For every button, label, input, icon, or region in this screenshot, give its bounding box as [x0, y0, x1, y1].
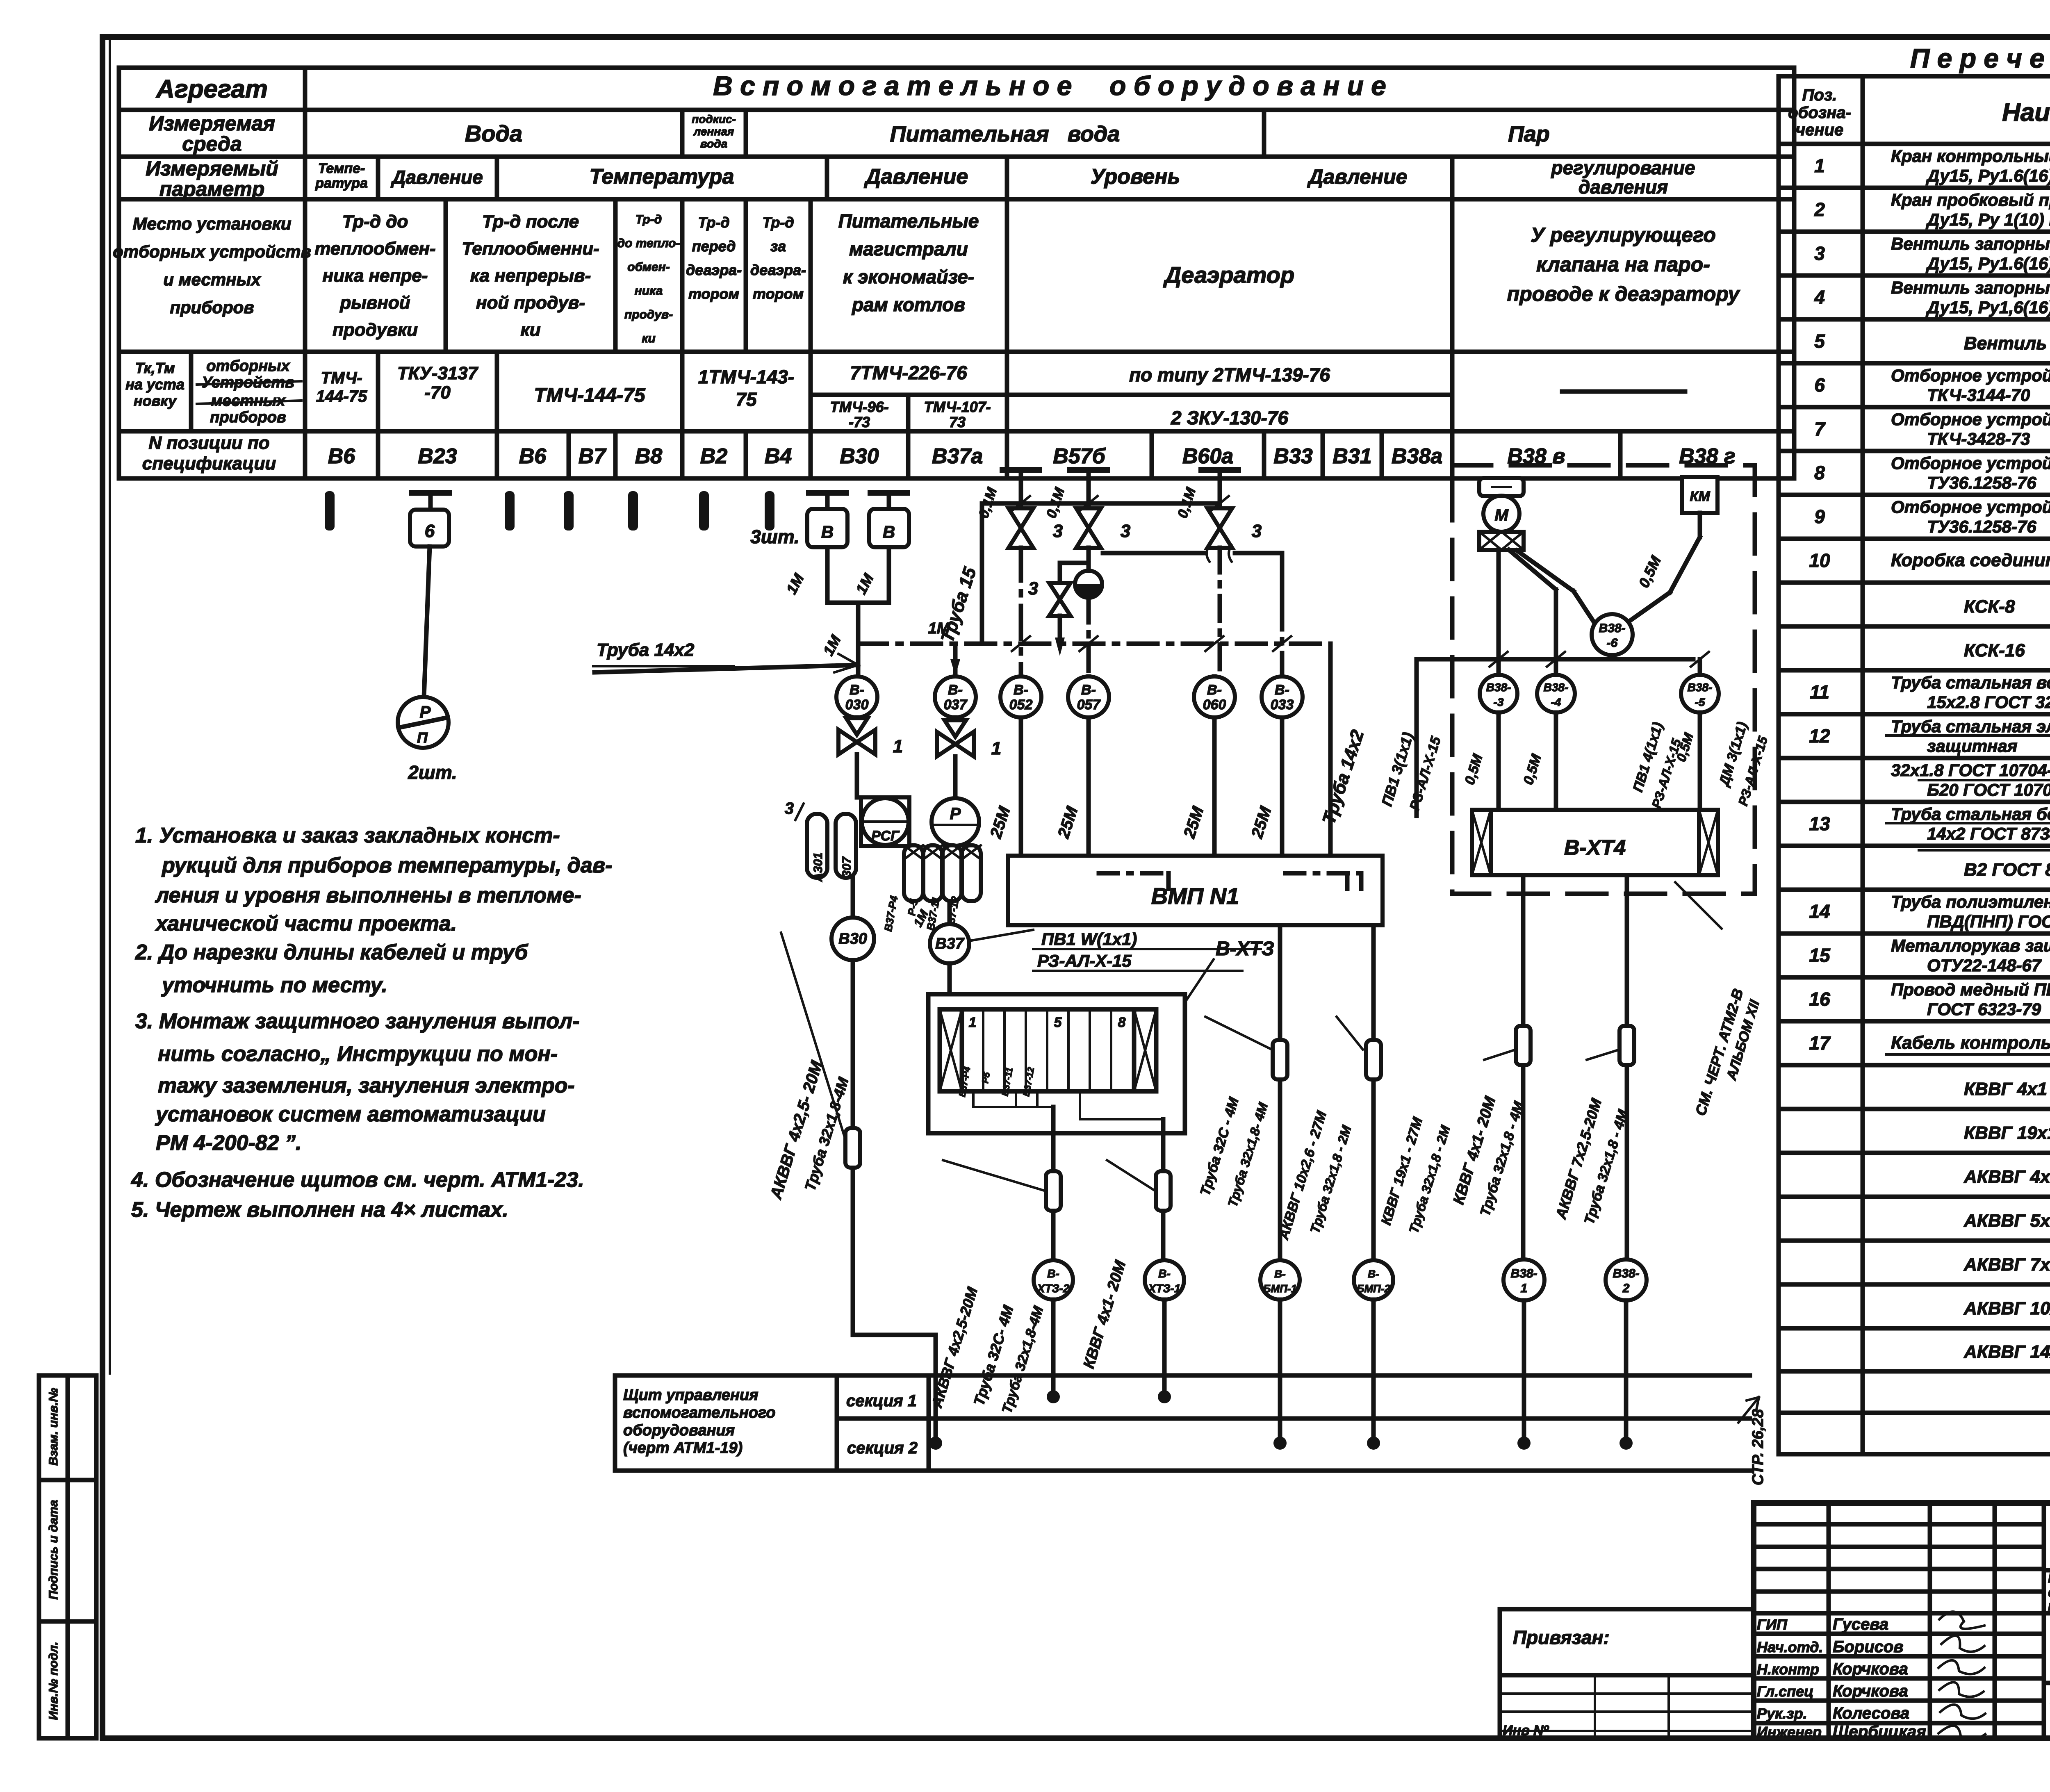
svg-text:Привязан:: Привязан:: [1513, 1627, 1610, 1648]
svg-text:давления: давления: [1578, 176, 1668, 198]
svg-text:Деаэратор: Деаэратор: [1163, 262, 1294, 288]
svg-text:вспомогательного: вспомогательного: [623, 1404, 776, 1421]
svg-text:тором: тором: [753, 285, 804, 302]
svg-text:Наименование: Наименование: [2002, 98, 2050, 127]
svg-text:060: 060: [1203, 697, 1226, 713]
svg-text:4. Обозначение щитов см.: 4. Обозначение щитов см. черт. АТМ1-23.: [131, 1168, 584, 1192]
svg-text:КМ: КМ: [1690, 489, 1710, 504]
svg-text:АКВВГ 4х2.5: АКВВГ 4х2.5: [1963, 1167, 2050, 1187]
svg-text:2: 2: [1814, 199, 1825, 220]
svg-text:В-ХТЗ: В-ХТЗ: [1216, 938, 1274, 960]
svg-text:В с п о м о г а т е л ь н о е: В с п о м о г а т е л ь н о е о б о р у …: [713, 71, 1386, 101]
svg-text:В38-: В38-: [1613, 1267, 1639, 1280]
svg-text:057: 057: [1077, 697, 1101, 713]
svg-text:чение: чение: [1796, 121, 1843, 139]
svg-text:В4: В4: [765, 444, 792, 468]
svg-text:тажу заземления, зануления э: тажу заземления, зануления электро-: [158, 1074, 575, 1098]
svg-text:ТМЧ-: ТМЧ-: [321, 369, 362, 387]
svg-text:Ду15, Ру1.6(16) ТУ26-07-1061: Ду15, Ру1.6(16) ТУ26-07-1061-73: [1926, 166, 2050, 185]
svg-text:регулирование: регулирование: [1551, 157, 1695, 178]
svg-text:1ТМЧ-143-: 1ТМЧ-143-: [698, 366, 794, 387]
svg-text:17: 17: [1809, 1032, 1831, 1054]
svg-text:12: 12: [1809, 725, 1830, 747]
svg-text:Кран контрольный трехходовой 1: Кран контрольный трехходовой 14м1: [1891, 146, 2050, 166]
svg-text:6: 6: [425, 521, 435, 541]
svg-text:У регулирующего: У регулирующего: [1531, 223, 1716, 246]
svg-text:сельского строительства ( в б: сельского строительства ( в блочном испо…: [2048, 1585, 2050, 1600]
svg-text:Темпе-: Темпе-: [318, 161, 365, 176]
svg-text:нении). Топливо-каменные и бур: нении). Топливо-каменные и бурые угли.: [2048, 1598, 2050, 1613]
svg-text:Гусева: Гусева: [1833, 1615, 1888, 1633]
svg-text:2: 2: [1622, 1282, 1630, 1295]
svg-text:-3: -3: [1494, 696, 1504, 708]
svg-text:Подпись и дата: Подпись и дата: [47, 1500, 60, 1599]
svg-text:Питательная вода: Питательная вода: [890, 122, 1120, 146]
svg-text:ПВД(ПНП) ГОСТ 18599-83: ПВД(ПНП) ГОСТ 18599-83: [1927, 912, 2050, 931]
svg-text:ВМП N1: ВМП N1: [1151, 883, 1239, 909]
svg-text:Вода: Вода: [465, 121, 522, 146]
svg-text:В30: В30: [838, 930, 867, 947]
svg-text:приборов: приборов: [210, 409, 286, 426]
svg-text:Кран пробковый проходной 14ч6б: Кран пробковый проходной 14ч6бк: [1891, 190, 2050, 209]
svg-text:КВВГ 19х1: КВВГ 19х1: [1964, 1123, 2050, 1143]
svg-text:3: 3: [1121, 521, 1130, 541]
svg-text:Труба стальная водогазопроводн: Труба стальная водогазопроводная: [1891, 673, 2050, 692]
svg-text:Отборное устройство 16-225У: Отборное устройство 16-225У: [1891, 497, 2050, 517]
svg-text:АКВВГ 5х2.5: АКВВГ 5х2.5: [1963, 1211, 2050, 1231]
svg-text:АКВВГ 7х2.5: АКВВГ 7х2.5: [1963, 1255, 2050, 1275]
svg-text:Давление: Давление: [1307, 165, 1408, 188]
svg-text:деаэра-: деаэра-: [686, 262, 742, 278]
svg-text:73: 73: [949, 414, 966, 430]
svg-text:КСК-16: КСК-16: [1964, 640, 2025, 660]
svg-text:Измеряемый: Измеряемый: [146, 157, 278, 180]
svg-text:обозна-: обозна-: [1788, 104, 1851, 122]
svg-text:В38а: В38а: [1392, 444, 1442, 468]
svg-text:ГОСТ 6323-79: ГОСТ 6323-79: [1927, 1000, 2041, 1019]
svg-text:ленная: ленная: [693, 125, 734, 138]
svg-text:16: 16: [1809, 988, 1830, 1010]
svg-text:3: 3: [1028, 578, 1038, 599]
svg-text:1: 1: [893, 736, 903, 756]
svg-text:ТМЧ-107-: ТМЧ-107-: [924, 398, 991, 415]
svg-text:В2: В2: [700, 444, 728, 468]
svg-text:до тепло-: до тепло-: [617, 237, 680, 250]
svg-text:ТУ36.1258-76: ТУ36.1258-76: [1927, 517, 2036, 536]
svg-text:13: 13: [1809, 813, 1830, 834]
svg-text:В31: В31: [1332, 444, 1371, 468]
svg-text:Вентиль запорный муфтовый 15ч8: Вентиль запорный муфтовый 15ч8п2: [1891, 234, 2050, 253]
svg-text:перед: перед: [692, 238, 736, 255]
svg-text:по типу 2ТМЧ-139-76: по типу 2ТМЧ-139-76: [1129, 364, 1330, 385]
svg-text:АКВВГ 14х2.5: АКВВГ 14х2.5: [1963, 1342, 2050, 1362]
svg-text:Пар: Пар: [1508, 122, 1550, 146]
svg-text:М: М: [1494, 506, 1509, 524]
svg-text:РМ 4-200-82 ”.: РМ 4-200-82 ”.: [156, 1131, 302, 1155]
svg-text:подкис-: подкис-: [692, 113, 736, 125]
svg-text:ХТЗ-1: ХТЗ-1: [1148, 1282, 1181, 1295]
svg-text:В38-: В38-: [1544, 681, 1569, 694]
svg-text:14х2 ГОСТ 8734-75: 14х2 ГОСТ 8734-75: [1927, 824, 2050, 843]
svg-text:Уровень: Уровень: [1091, 165, 1180, 189]
svg-text:В6: В6: [328, 444, 356, 468]
svg-text:Ду15, Ру1,6(16) ГОСТ 18161-7: Ду15, Ру1,6(16) ГОСТ 18161-72: [1926, 298, 2050, 317]
svg-text:Б20 ГОСТ 10705-80: Б20 ГОСТ 10705-80: [1927, 780, 2050, 799]
svg-text:В33: В33: [1273, 444, 1312, 468]
svg-text:10: 10: [1809, 550, 1830, 571]
svg-text:11: 11: [1810, 681, 1829, 703]
svg-text:3: 3: [1053, 521, 1063, 541]
svg-text:1: 1: [1814, 155, 1825, 176]
svg-text:В-: В-: [1274, 1268, 1285, 1280]
svg-text:1. Установка и заказ заклад: 1. Установка и заказ закладных конст-: [135, 824, 560, 847]
svg-text:ХТЗ-2: ХТЗ-2: [1036, 1282, 1070, 1295]
svg-text:Отборное устройство 16-80: Отборное устройство 16-80: [1891, 366, 2050, 385]
svg-text:ления и уровня выполнены в: ления и уровня выполнены в тепломе-: [155, 883, 581, 907]
svg-text:В: В: [821, 522, 834, 542]
svg-text:ки: ки: [520, 320, 540, 340]
svg-text:Тк,Тм: Тк,Тм: [135, 360, 175, 376]
svg-text:Труба стальная бесшовная: Труба стальная бесшовная: [1891, 804, 2050, 824]
svg-text:Инв Nº: Инв Nº: [1503, 1723, 1549, 1738]
svg-text:32х1.8 ГОСТ 10704-76: 32х1.8 ГОСТ 10704-76: [1891, 761, 2050, 780]
svg-text:ПВ1 W(1х1): ПВ1 W(1х1): [1041, 929, 1137, 949]
svg-text:В-: В-: [1158, 1267, 1171, 1280]
svg-text:А301: А301: [811, 852, 825, 882]
svg-text:Р5: Р5: [980, 1071, 992, 1084]
svg-text:ТКЧ-3144-70: ТКЧ-3144-70: [1927, 385, 2030, 405]
svg-text:Измеряемая: Измеряемая: [149, 112, 275, 135]
svg-text:-5: -5: [1695, 696, 1705, 708]
svg-text:Нач.отд.: Нач.отд.: [1757, 1639, 1823, 1655]
svg-text:к экономайзе-: к экономайзе-: [843, 266, 974, 287]
svg-text:3: 3: [1252, 521, 1262, 541]
svg-text:3шт.: 3шт.: [750, 526, 799, 547]
svg-text:параметр: параметр: [159, 178, 265, 200]
svg-text:В-: В-: [1047, 1267, 1059, 1280]
svg-text:Вентиль запорный: Вентиль запорный: [1964, 333, 2050, 353]
svg-text:Корчкова: Корчкова: [1833, 1660, 1908, 1678]
svg-text:Тр-д до: Тр-д до: [342, 212, 408, 232]
svg-text:Вентиль запорный 15кч18п: Вентиль запорный 15кч18п: [1891, 278, 2050, 297]
svg-text:за: за: [770, 238, 786, 255]
svg-text:3. Монтаж защитного зануле: 3. Монтаж защитного зануления выпол-: [135, 1009, 580, 1033]
svg-text:В38-: В38-: [1688, 681, 1713, 694]
svg-text:В38-: В38-: [1599, 622, 1625, 635]
svg-text:В60а: В60а: [1182, 444, 1233, 468]
svg-text:Ду15, Ру1.6(16) ГОСТ 18722-7: Ду15, Ру1.6(16) ГОСТ 18722-73: [1926, 254, 2050, 273]
svg-text:СТР. 26,28: СТР. 26,28: [1749, 1409, 1767, 1485]
svg-text:Питательные: Питательные: [838, 210, 979, 232]
svg-text:-70: -70: [424, 383, 451, 403]
svg-text:75: 75: [736, 389, 757, 410]
svg-text:В-: В-: [1275, 682, 1289, 698]
svg-text:уточнить по месту.: уточнить по месту.: [161, 973, 387, 997]
svg-text:В-: В-: [1207, 682, 1222, 698]
svg-text:теплообмен-: теплообмен-: [314, 239, 435, 259]
svg-text:7ТМЧ-226-76: 7ТМЧ-226-76: [850, 362, 967, 383]
svg-text:установок систем автоматиз: установок систем автоматизации: [155, 1102, 546, 1126]
svg-text:3: 3: [785, 799, 794, 817]
svg-text:рам котлов: рам котлов: [851, 294, 965, 315]
svg-text:Рук.зр.: Рук.зр.: [1757, 1705, 1807, 1722]
svg-text:деаэра-: деаэра-: [750, 262, 806, 278]
svg-text:ТКЧ-3428-73: ТКЧ-3428-73: [1927, 429, 2030, 449]
svg-text:ТУ36.1258-76: ТУ36.1258-76: [1927, 473, 2036, 492]
svg-text:4: 4: [1814, 287, 1825, 308]
svg-text:Отборное устройство 64-200П: Отборное устройство 64-200П: [1891, 453, 2050, 473]
svg-text:030: 030: [845, 697, 869, 713]
svg-text:Р: Р: [420, 703, 431, 721]
svg-text:ратура: ратура: [315, 175, 368, 191]
svg-text:БМП-1: БМП-1: [1263, 1282, 1297, 1295]
svg-text:-6: -6: [1607, 636, 1618, 650]
svg-text:052: 052: [1009, 697, 1033, 713]
svg-text:и местных: и местных: [163, 270, 261, 289]
svg-text:КСК-8: КСК-8: [1964, 597, 2015, 617]
svg-text:Металлорукав защитный РЗ-АЛ-Х-: Металлорукав защитный РЗ-АЛ-Х-15: [1891, 936, 2050, 955]
svg-text:N позиции по: N позиции по: [148, 433, 269, 453]
svg-text:В-: В-: [850, 682, 864, 698]
svg-text:Борисов: Борисов: [1833, 1638, 1903, 1656]
svg-text:В-: В-: [948, 682, 963, 698]
svg-text:1: 1: [991, 738, 1001, 758]
svg-text:Труба полиэтиленовая 32С: Труба полиэтиленовая 32С: [1891, 892, 2050, 911]
svg-text:Теплообменни-: Теплообменни-: [462, 239, 599, 259]
svg-text:ника: ника: [635, 284, 663, 298]
svg-text:ТМЧ-144-75: ТМЧ-144-75: [534, 385, 645, 406]
svg-text:2 ЗКУ-130-76: 2 ЗКУ-130-76: [1171, 407, 1288, 428]
svg-text:В57б: В57б: [1053, 444, 1106, 468]
svg-text:продув-: продув-: [624, 308, 673, 321]
svg-text:РЗ-АЛ-Х-15: РЗ-АЛ-Х-15: [1037, 951, 1132, 970]
svg-text:В-: В-: [1081, 682, 1096, 698]
svg-text:КВВГ 4х1: КВВГ 4х1: [1964, 1079, 2047, 1099]
svg-text:вода: вода: [700, 137, 727, 150]
svg-text:РСГ: РСГ: [871, 828, 900, 844]
svg-text:В37а: В37а: [932, 444, 983, 468]
svg-text:15х2.8 ГОСТ 3262-75: 15х2.8 ГОСТ 3262-75: [1927, 692, 2050, 712]
svg-text:рукций для приборов темпера: рукций для приборов температуры, дав-: [161, 854, 612, 877]
svg-text:-4: -4: [1551, 696, 1561, 708]
svg-text:Давление: Давление: [864, 165, 968, 189]
svg-text:нить согласно„ Инструкции по: нить согласно„ Инструкции по мон-: [158, 1042, 558, 1066]
svg-text:В-: В-: [1014, 682, 1028, 698]
svg-text:5: 5: [1054, 1015, 1062, 1030]
svg-text:магистрали: магистрали: [849, 238, 968, 260]
svg-text:Тр-д: Тр-д: [698, 214, 729, 231]
svg-text:защитная: защитная: [1927, 736, 2018, 756]
svg-text:Взам. инв.№: Взам. инв.№: [47, 1388, 60, 1466]
svg-text:Гл.спец: Гл.спец: [1757, 1683, 1813, 1700]
svg-text:В6: В6: [519, 444, 547, 468]
svg-text:В38-: В38-: [1510, 1267, 1537, 1280]
svg-text:033: 033: [1271, 697, 1294, 713]
svg-text:ОТУ22-148-67: ОТУ22-148-67: [1927, 956, 2042, 975]
svg-text:9: 9: [1814, 506, 1825, 527]
svg-text:1: 1: [1521, 1282, 1528, 1295]
svg-text:ника непре-: ника непре-: [323, 266, 428, 286]
svg-text:отборных: отборных: [206, 357, 290, 375]
svg-text:ной продув-: ной продув-: [476, 293, 585, 313]
svg-text:П е р е ч е н ь э л е м е н: П е р е ч е н ь э л е м е н т о в: [1910, 43, 2050, 73]
svg-text:Р: Р: [950, 805, 961, 823]
svg-text:секция 2: секция 2: [847, 1439, 918, 1457]
svg-text:Тр-д: Тр-д: [762, 214, 794, 231]
svg-text:Агрегат: Агрегат: [155, 75, 268, 103]
svg-text:Место установки: Место установки: [132, 214, 291, 233]
svg-text:продувки: продувки: [333, 320, 418, 340]
svg-text:ханической части проекта.: ханической части проекта.: [155, 912, 457, 936]
svg-text:ТКУ-3137: ТКУ-3137: [397, 363, 479, 383]
svg-text:ки: ки: [642, 332, 656, 345]
svg-text:обмен-: обмен-: [627, 260, 670, 274]
svg-text:Колесова: Колесова: [1833, 1704, 1909, 1722]
svg-text:среда: среда: [182, 132, 241, 155]
svg-text:Коробка соединительная: Коробка соединительная: [1891, 550, 2050, 570]
svg-text:приборов: приборов: [170, 298, 254, 317]
svg-text:14: 14: [1809, 901, 1830, 922]
svg-text:8: 8: [1118, 1015, 1126, 1030]
svg-text:Провод медный ПВ1. 1. 380: Провод медный ПВ1. 1. 380: [1891, 980, 2050, 999]
svg-text:В8: В8: [635, 444, 663, 468]
svg-text:проводе к деаэратору: проводе к деаэратору: [1507, 282, 1740, 305]
svg-text:8: 8: [1814, 462, 1825, 483]
svg-text:Корчкова: Корчкова: [1833, 1682, 1908, 1700]
svg-text:В-ХТ4: В-ХТ4: [1564, 836, 1626, 860]
svg-text:Тр-д: Тр-д: [635, 213, 662, 226]
svg-text:В2 ГОСТ 8733-74: В2 ГОСТ 8733-74: [1964, 860, 2050, 880]
svg-text:144-75: 144-75: [316, 387, 367, 405]
svg-text:на уста: на уста: [125, 376, 184, 393]
svg-text:Труба стальная электросварная: Труба стальная электросварная: [1891, 717, 2050, 736]
svg-text:новку: новку: [134, 392, 177, 409]
svg-text:В-: В-: [1368, 1268, 1379, 1280]
svg-text:В7: В7: [579, 444, 607, 468]
svg-text:клапана на паро-: клапана на паро-: [1536, 253, 1710, 276]
svg-text:Температура: Температура: [589, 165, 734, 189]
svg-text:В30: В30: [840, 444, 879, 468]
svg-text:спецификации: спецификации: [142, 453, 276, 474]
svg-text:Тр-д после: Тр-д после: [482, 212, 579, 232]
svg-text:В38-: В38-: [1486, 681, 1511, 694]
svg-text:Кабель контрольный ГОСТ 1508-7: Кабель контрольный ГОСТ 1508-78: [1891, 1033, 2050, 1053]
svg-text:5: 5: [1814, 330, 1825, 352]
svg-text:-73: -73: [849, 414, 870, 430]
svg-text:В: В: [883, 522, 895, 542]
svg-text:Щербицкая: Щербицкая: [1833, 1723, 1926, 1741]
svg-text:Инженер: Инженер: [1757, 1724, 1822, 1740]
svg-text:ТМЧ-96-: ТМЧ-96-: [830, 398, 888, 415]
svg-text:307: 307: [840, 856, 854, 877]
svg-text:7: 7: [1814, 418, 1826, 439]
svg-text:(черт АТМ1-19): (черт АТМ1-19): [623, 1439, 743, 1457]
svg-text:секция 1: секция 1: [846, 1392, 917, 1410]
svg-text:6: 6: [1814, 374, 1825, 396]
svg-text:Н.контр: Н.контр: [1757, 1661, 1819, 1678]
svg-text:2шт.: 2шт.: [408, 762, 457, 783]
svg-text:Поз.: Поз.: [1802, 86, 1837, 104]
svg-text:тором: тором: [688, 285, 739, 302]
svg-text:Отборное устройство 16-200: Отборное устройство 16-200: [1891, 410, 2050, 429]
svg-text:В23: В23: [418, 444, 457, 468]
svg-text:Инв.№ подл.: Инв.№ подл.: [47, 1642, 60, 1720]
svg-text:рывной: рывной: [339, 293, 410, 313]
svg-text:3: 3: [1814, 243, 1825, 264]
svg-text:АКВВГ 10х2.5: АКВВГ 10х2.5: [1963, 1298, 2050, 1318]
svg-text:Труба 14х2: Труба 14х2: [597, 640, 695, 660]
svg-text:Щит управления: Щит управления: [623, 1387, 758, 1404]
svg-text:037: 037: [944, 697, 968, 713]
svg-text:5. Чертеж выполнен на 4× л: 5. Чертеж выполнен на 4× листах.: [131, 1198, 508, 1222]
svg-text:БМП-2: БМП-2: [1357, 1282, 1390, 1295]
svg-text:2. До нарезки длины кабелей: 2. До нарезки длины кабелей и труб: [135, 940, 528, 964]
svg-text:1: 1: [969, 1015, 977, 1030]
svg-text:оборудования: оборудования: [623, 1422, 735, 1439]
svg-text:отборных устройств: отборных устройств: [113, 242, 311, 261]
svg-text:Ду15, Ру 1(10) ГОСТ 19193-: Ду15, Ру 1(10) ГОСТ 19193-73: [1926, 210, 2050, 229]
svg-text:ГИП: ГИП: [1757, 1616, 1788, 1633]
svg-text:ка непрерыв-: ка непрерыв-: [470, 266, 591, 286]
svg-text:Давление: Давление: [390, 166, 483, 188]
svg-text:Котельная с 4 котлами КЕ-2,5-1: Котельная с 4 котлами КЕ-2,5-14С для: [2048, 1570, 2050, 1586]
svg-text:П: П: [417, 729, 428, 746]
svg-text:15: 15: [1809, 945, 1831, 966]
svg-text:В37: В37: [935, 935, 965, 952]
